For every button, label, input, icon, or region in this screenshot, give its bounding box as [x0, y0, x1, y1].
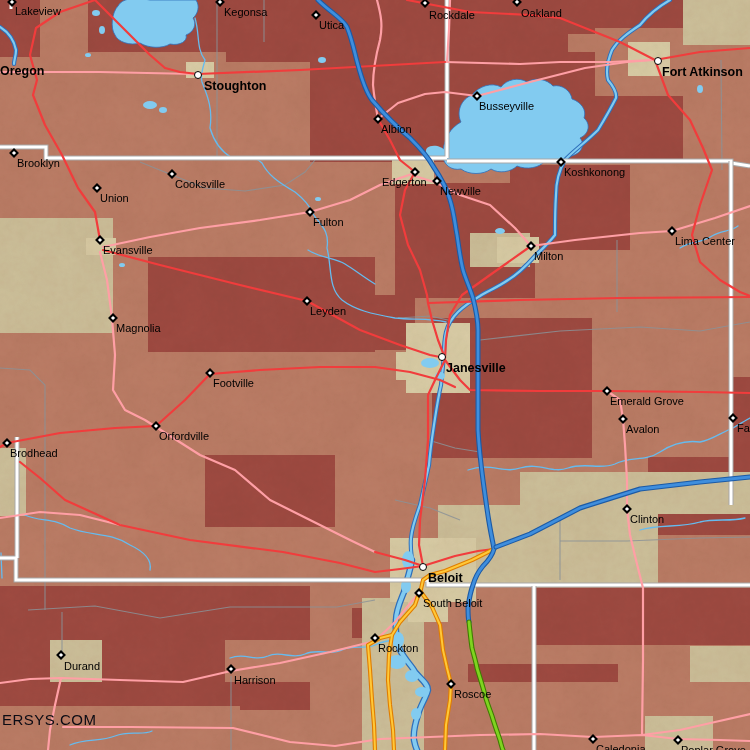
pond [159, 107, 167, 113]
pond [697, 85, 703, 93]
pond [143, 101, 157, 109]
map-canvas [0, 0, 750, 750]
river-widening [405, 670, 419, 682]
pond [85, 53, 91, 57]
river-widening [421, 358, 439, 368]
watermark: ERSYS.COM [2, 711, 97, 728]
map-viewport[interactable]: LakeviewKegonsaUticaRockdaleOaklandOrego… [0, 0, 750, 750]
pond [495, 228, 505, 234]
river-widening [411, 708, 421, 720]
pond [315, 197, 321, 201]
pond [99, 26, 105, 34]
pond [92, 10, 100, 16]
pond [119, 263, 125, 267]
hillshade-fine [0, 0, 750, 750]
river-widening [415, 687, 429, 697]
lake-kegonsa [112, 0, 198, 47]
pond [318, 57, 326, 63]
